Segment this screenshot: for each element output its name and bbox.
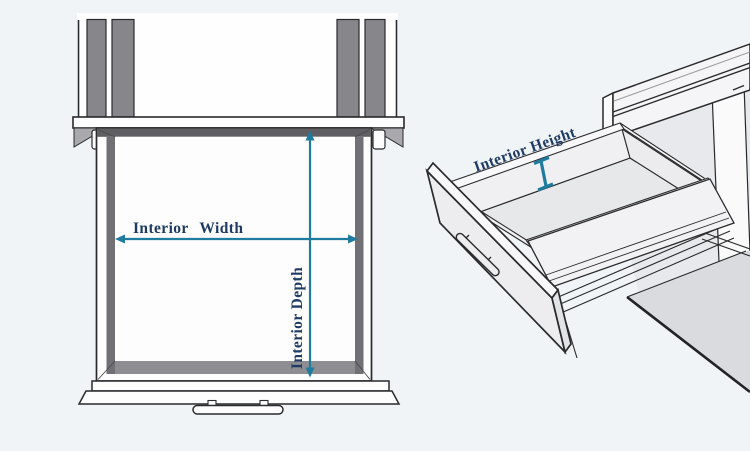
cabinet-left-rail-inner (112, 20, 134, 118)
cabinet-front-rail (73, 117, 404, 128)
diagram-canvas: Interior Width Interior Depth (0, 0, 750, 451)
right-slide-clip (373, 130, 385, 149)
cabinet-right-rail-inner (337, 20, 359, 118)
drawer-front-panel-edge (79, 391, 399, 404)
interior-width-label: Interior Width (133, 220, 243, 237)
drawer-left-wall (107, 137, 116, 374)
cabinet-left-rail-outer (87, 20, 106, 118)
drawer-front-wall-inner (107, 361, 364, 374)
cabinet-right-rail-outer (365, 20, 385, 118)
drawer-box-top-view (97, 128, 372, 381)
drawer-front-band (92, 381, 389, 391)
perspective-diagram: Interior Height (427, 44, 750, 392)
drawer-right-wall (355, 137, 364, 374)
drawer-front-top-view (79, 381, 399, 414)
drawer-interior-bottom (115, 137, 355, 361)
interior-depth-label: Interior Depth (289, 267, 306, 369)
drawer-back-wall (98, 129, 371, 137)
drawer-dimensions-diagram: Interior Width Interior Depth (0, 0, 750, 451)
top-view-diagram: Interior Width Interior Depth (73, 13, 404, 414)
drawer-handle (193, 406, 283, 415)
